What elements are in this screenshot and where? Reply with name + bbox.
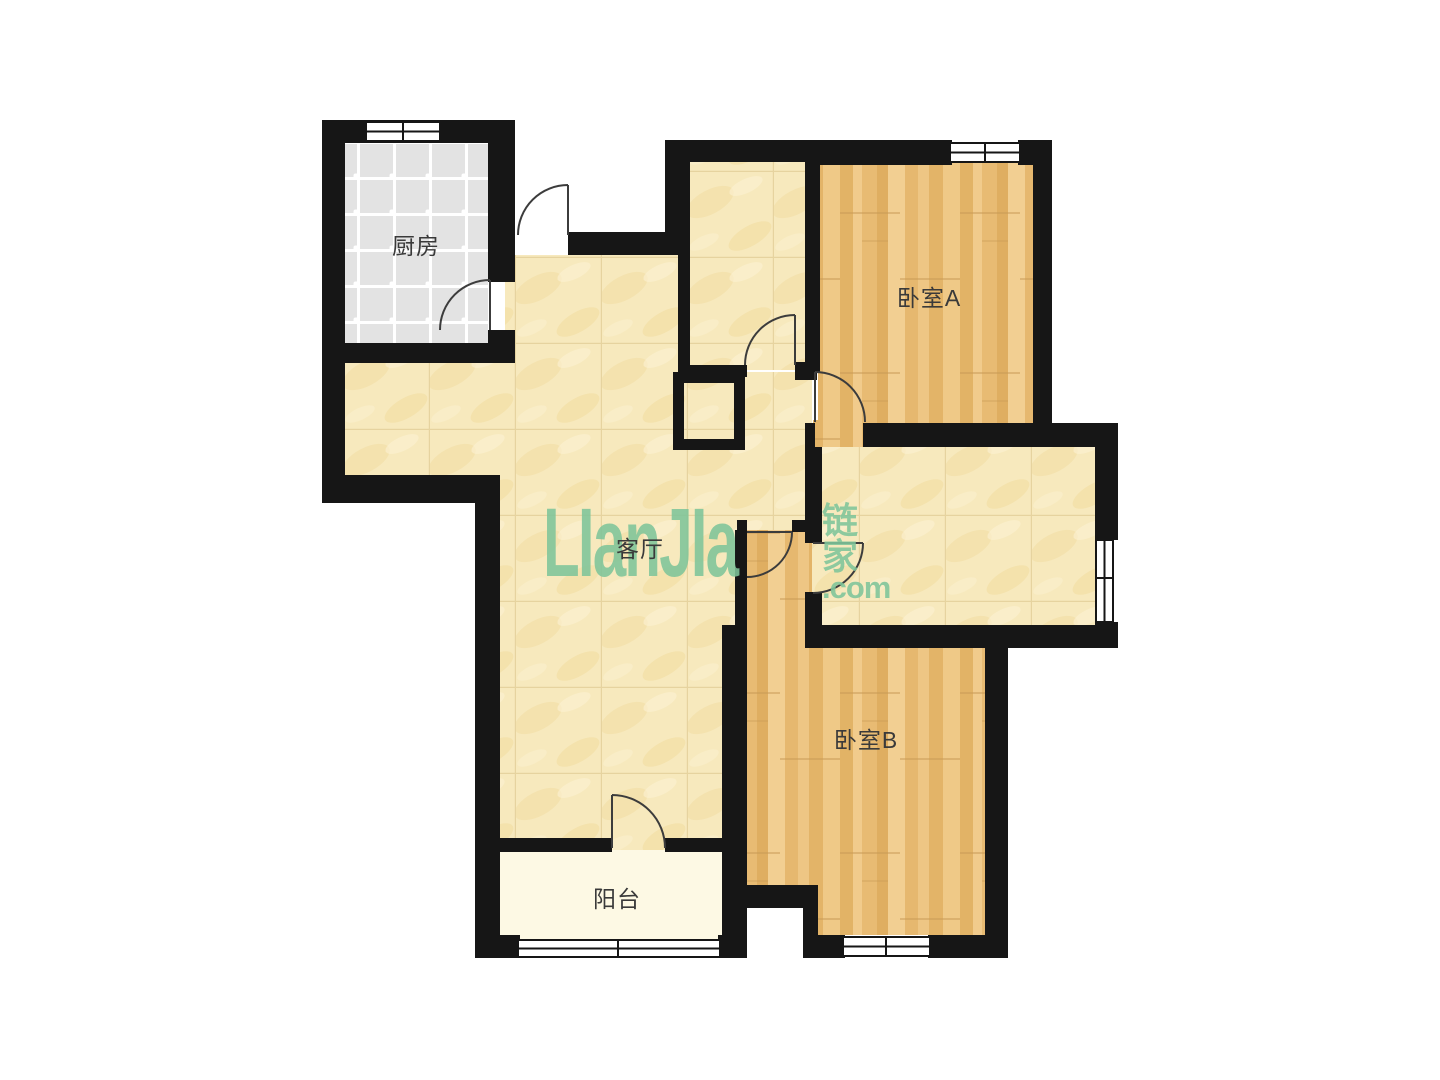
utility-room-window [1096,540,1113,622]
bedroom-b-window [843,937,930,956]
bedroom-a-label: 卧室A [897,279,961,313]
entry-door [518,185,568,235]
bedroom-a-door-threshold [813,420,867,447]
utility-room-floor [812,445,1097,627]
bedroom-b-label: 卧室B [834,721,898,755]
living-room-label: 客厅 [616,530,664,564]
floorplan-canvas: LIanJIa 链家 .com 厨房 客厅 卧室A 卧室B 阳台 [0,0,1440,1080]
floors [340,143,1097,942]
balcony-window [518,940,720,957]
floorplan-drawing [0,0,1440,1080]
kitchen-window [366,122,440,141]
balcony-label: 阳台 [593,880,641,914]
bedroom-a-window [950,143,1020,162]
kitchen-label: 厨房 [392,227,440,261]
